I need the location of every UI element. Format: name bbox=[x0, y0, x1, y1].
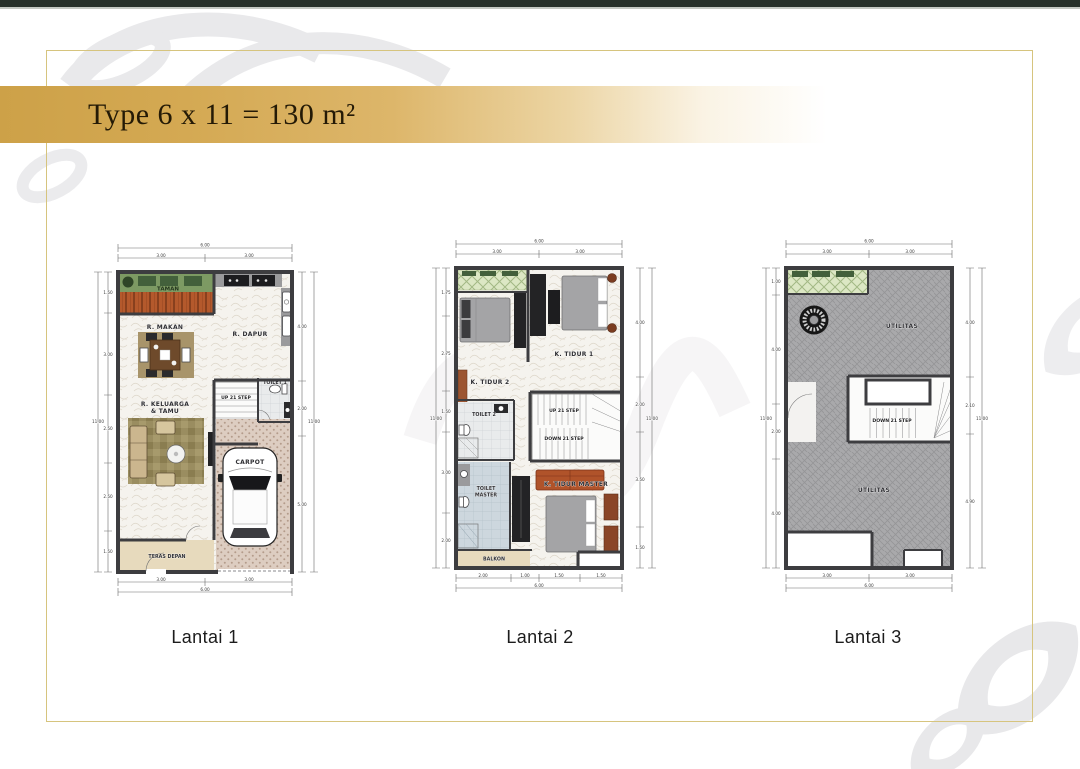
caption-lantai-1: Lantai 1 bbox=[125, 627, 285, 648]
svg-text:4.00: 4.00 bbox=[635, 320, 645, 325]
svg-text:1.50: 1.50 bbox=[635, 545, 645, 550]
lower-roof-cutout bbox=[788, 532, 872, 566]
svg-text:6.00: 6.00 bbox=[200, 243, 210, 248]
svg-text:1.00: 1.00 bbox=[771, 279, 781, 284]
svg-text:DOWN 21 STEP: DOWN 21 STEP bbox=[872, 418, 912, 424]
svg-text:3.00: 3.00 bbox=[492, 249, 502, 254]
svg-text:11.00: 11.00 bbox=[430, 416, 442, 421]
svg-text:TERAS DEPAN: TERAS DEPAN bbox=[148, 554, 185, 560]
toilet-2: TOILET 2 bbox=[458, 402, 514, 460]
caption-lantai-2: Lantai 2 bbox=[460, 627, 620, 648]
svg-text:11.00: 11.00 bbox=[92, 419, 104, 424]
stairs: DOWN 21 STEP bbox=[848, 376, 952, 442]
svg-text:UP 21 STEP: UP 21 STEP bbox=[221, 395, 251, 401]
svg-text:4.90: 4.90 bbox=[965, 499, 975, 504]
svg-text:4.00: 4.00 bbox=[297, 324, 307, 329]
svg-text:3.00: 3.00 bbox=[575, 249, 585, 254]
label-utilitas-upper: UTILITAS bbox=[886, 323, 918, 330]
svg-text:TOILET: TOILET bbox=[477, 486, 496, 492]
svg-text:1.50: 1.50 bbox=[103, 549, 113, 554]
top-border-strip bbox=[0, 0, 1080, 9]
svg-text:& TAMU: & TAMU bbox=[151, 408, 179, 415]
svg-text:1.50: 1.50 bbox=[596, 573, 606, 578]
svg-text:2.10: 2.10 bbox=[965, 403, 975, 408]
svg-text:6.00: 6.00 bbox=[534, 583, 544, 588]
planter-strip bbox=[788, 270, 868, 294]
label-utilitas-lower: UTILITAS bbox=[858, 487, 890, 494]
svg-text:3.00: 3.00 bbox=[905, 249, 915, 254]
svg-text:2.00: 2.00 bbox=[635, 402, 645, 407]
brochure-page: Type 6 x 11 = 130 m² bbox=[0, 0, 1080, 769]
svg-text:3.00: 3.00 bbox=[905, 573, 915, 578]
svg-text:3.00: 3.00 bbox=[822, 249, 832, 254]
svg-text:6.00: 6.00 bbox=[534, 239, 544, 244]
svg-text:UP 21 STEP: UP 21 STEP bbox=[549, 408, 579, 414]
svg-text:2.00: 2.00 bbox=[771, 429, 781, 434]
svg-text:6.00: 6.00 bbox=[864, 239, 874, 244]
svg-text:K. TIDUR 1: K. TIDUR 1 bbox=[554, 351, 593, 358]
svg-text:2.00: 2.00 bbox=[441, 538, 451, 543]
svg-text:2.50: 2.50 bbox=[103, 426, 113, 431]
svg-text:TOILET 2: TOILET 2 bbox=[472, 412, 496, 418]
svg-text:6.00: 6.00 bbox=[864, 583, 874, 588]
svg-text:BALKON: BALKON bbox=[483, 557, 505, 563]
svg-text:3.00: 3.00 bbox=[244, 577, 254, 582]
svg-text:2.00: 2.00 bbox=[478, 573, 488, 578]
floor-plan-lantai-2: 6.00 3.00 3.00 1.75 2.75 1.50 3.00 2.00 … bbox=[428, 232, 678, 604]
svg-text:3.00: 3.00 bbox=[103, 352, 113, 357]
water-tank bbox=[800, 306, 829, 335]
svg-text:5.00: 5.00 bbox=[297, 502, 307, 507]
svg-text:3.00: 3.00 bbox=[441, 470, 451, 475]
dining-set: R. MAKAN bbox=[138, 324, 194, 378]
floor-plan-lantai-1: 6.00 3.00 3.00 1.50 3.00 2.50 2.50 1.50 … bbox=[90, 232, 340, 604]
lower-roof-cutout-small bbox=[904, 550, 942, 566]
svg-text:CARPOT: CARPOT bbox=[235, 459, 265, 466]
label-dapur: R. DAPUR bbox=[232, 331, 267, 338]
svg-text:4.00: 4.00 bbox=[771, 347, 781, 352]
planter-strip bbox=[458, 270, 528, 290]
svg-text:2.50: 2.50 bbox=[103, 494, 113, 499]
svg-text:3.00: 3.00 bbox=[244, 253, 254, 258]
svg-text:K. TIDUR 2: K. TIDUR 2 bbox=[470, 379, 509, 386]
svg-text:1.75: 1.75 bbox=[441, 290, 451, 295]
svg-text:R. KELUARGA: R. KELUARGA bbox=[141, 401, 189, 408]
page-title: Type 6 x 11 = 130 m² bbox=[88, 98, 356, 132]
svg-text:DOWN 21 STEP: DOWN 21 STEP bbox=[544, 436, 584, 442]
caption-lantai-3: Lantai 3 bbox=[788, 627, 948, 648]
svg-text:11.00: 11.00 bbox=[308, 419, 320, 424]
svg-text:2.00: 2.00 bbox=[297, 406, 307, 411]
svg-text:11.00: 11.00 bbox=[646, 416, 658, 421]
svg-text:3.00: 3.00 bbox=[822, 573, 832, 578]
svg-text:MASTER: MASTER bbox=[475, 493, 497, 499]
svg-text:2.75: 2.75 bbox=[441, 351, 451, 356]
svg-text:4.00: 4.00 bbox=[771, 511, 781, 516]
balcony: BALKON bbox=[458, 550, 530, 566]
bottom-right-inset bbox=[580, 554, 620, 566]
svg-text:1.50: 1.50 bbox=[441, 409, 451, 414]
svg-text:4.00: 4.00 bbox=[965, 320, 975, 325]
toilet-1: TOILET 1 bbox=[258, 378, 292, 422]
svg-text:K. TIDUR MASTER: K. TIDUR MASTER bbox=[544, 481, 608, 488]
svg-text:R. MAKAN: R. MAKAN bbox=[147, 324, 183, 331]
svg-text:6.00: 6.00 bbox=[200, 587, 210, 592]
master-toilet: TOILET MASTER bbox=[458, 462, 510, 550]
svg-text:TAMAN: TAMAN bbox=[157, 287, 179, 293]
svg-text:1.50: 1.50 bbox=[554, 573, 564, 578]
svg-text:3.00: 3.00 bbox=[156, 253, 166, 258]
stairs: UP 21 STEP DOWN 21 STEP bbox=[532, 394, 622, 460]
left-corridor bbox=[788, 382, 816, 442]
room-taman: TAMAN bbox=[120, 274, 214, 314]
carport: CARPOT bbox=[216, 419, 292, 570]
svg-text:3.00: 3.00 bbox=[156, 577, 166, 582]
terrace: TERAS DEPAN bbox=[120, 540, 214, 570]
svg-text:11.00: 11.00 bbox=[976, 416, 988, 421]
svg-text:11.00: 11.00 bbox=[760, 416, 772, 421]
svg-text:3.50: 3.50 bbox=[635, 477, 645, 482]
svg-text:1.00: 1.00 bbox=[520, 573, 530, 578]
svg-text:1.50: 1.50 bbox=[103, 290, 113, 295]
floor-plan-lantai-3: 6.00 3.00 3.00 1.00 4.00 2.00 4.00 11.00… bbox=[758, 232, 1008, 604]
title-banner: Type 6 x 11 = 130 m² bbox=[0, 86, 1034, 143]
